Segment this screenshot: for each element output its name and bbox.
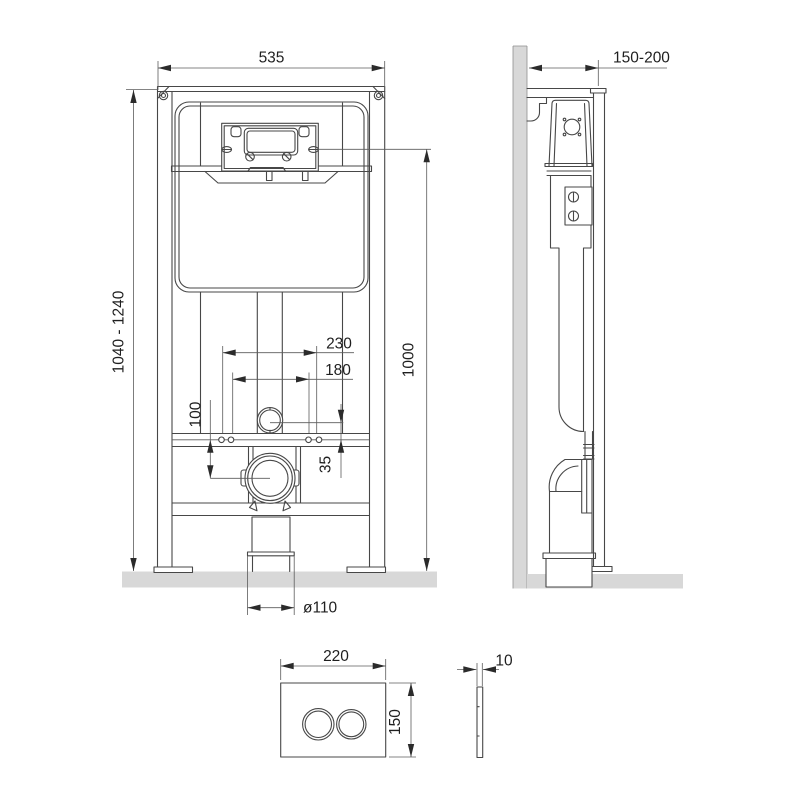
rod-hole [306,437,312,443]
dim-frame-width: 535 [158,50,385,91]
inlet-hole [564,119,580,135]
dim-plate-depth-label: 10 [495,653,513,670]
wall-section [513,46,527,589]
arrowhead [424,558,430,571]
shelf-side [545,164,593,176]
rod-hole [219,437,225,443]
water-connection [257,408,282,433]
arrowhead [304,350,317,356]
arrowhead [130,558,136,571]
arrowhead [424,149,430,162]
dim-plate-width: 220 [281,648,386,680]
rod-hole [316,437,322,443]
arrowhead [130,90,136,103]
dim-spacing-outer: 230 [223,336,354,434]
dim-plate-depth: 10 [457,653,513,687]
dim-outlet-drop-label: 100 [188,401,205,427]
cistern-side [551,176,593,432]
flush-plate-profile [477,687,483,758]
arrowhead [373,663,386,669]
arrowhead [248,605,261,611]
waste-elbow-side [543,460,596,588]
dim-height-range-label: 1040 - 1240 [111,290,128,373]
arrowhead [281,605,294,611]
elbow-base-plate [543,553,596,559]
arrowhead [408,744,414,757]
bottom-crossmember [172,503,370,516]
flush-bend-side [584,432,595,460]
arrowhead [233,376,246,382]
technical-drawing: 535 150-200 1040 - 1240 1000 230 [0,0,800,800]
arrowhead [585,65,598,71]
floor-surface-front [122,572,437,588]
access-window [222,123,319,171]
valve-assembly-side [545,100,593,175]
drain-flange [248,552,295,556]
installation-drawing-canvas: 535 150-200 1040 - 1240 1000 230 [0,0,800,800]
dim-plate-height: 150 [387,683,416,757]
drain-pipe-front [248,517,295,572]
arrowhead [408,683,414,696]
dim-spacing-outer-label: 230 [326,336,352,353]
arrowhead [296,376,309,382]
supply-pipe-circle [257,408,282,433]
arrowhead [158,65,171,71]
arrowhead [338,410,344,423]
arrowhead [281,663,294,669]
flush-plate-front [281,683,386,757]
dim-height-range: 1040 - 1240 [111,90,158,572]
rail-foot [592,567,612,572]
drain-pipe-side [546,559,592,588]
left-foot-plate [154,567,193,573]
waste-outlet [241,453,299,511]
arrowhead [483,666,496,672]
dim-flush-height-label: 1000 [401,342,418,377]
wall-bracket [527,98,547,122]
frame-rail-side [527,89,612,572]
dim-frame-width-label: 535 [259,50,285,67]
dim-rod-offset-label: 35 [318,456,335,473]
arrowhead [529,65,542,71]
side-view [513,46,683,589]
arrowhead [223,350,236,356]
dim-plate-width-label: 220 [323,648,349,665]
arrowhead [207,465,213,478]
arrowhead [372,65,385,71]
rod-hole [228,437,234,443]
flush-plate-side [477,687,483,758]
arrowhead [463,666,476,672]
dim-spacing-inner-label: 180 [325,362,351,379]
dim-depth-range-label: 150-200 [613,50,670,67]
dim-depth-range: 150-200 [529,50,670,87]
right-foot-plate [347,567,386,573]
top-wall-bar [527,89,594,98]
dim-drain-diameter-label: ø110 [303,600,338,617]
dim-plate-height-label: 150 [387,709,404,735]
front-view [122,87,437,588]
